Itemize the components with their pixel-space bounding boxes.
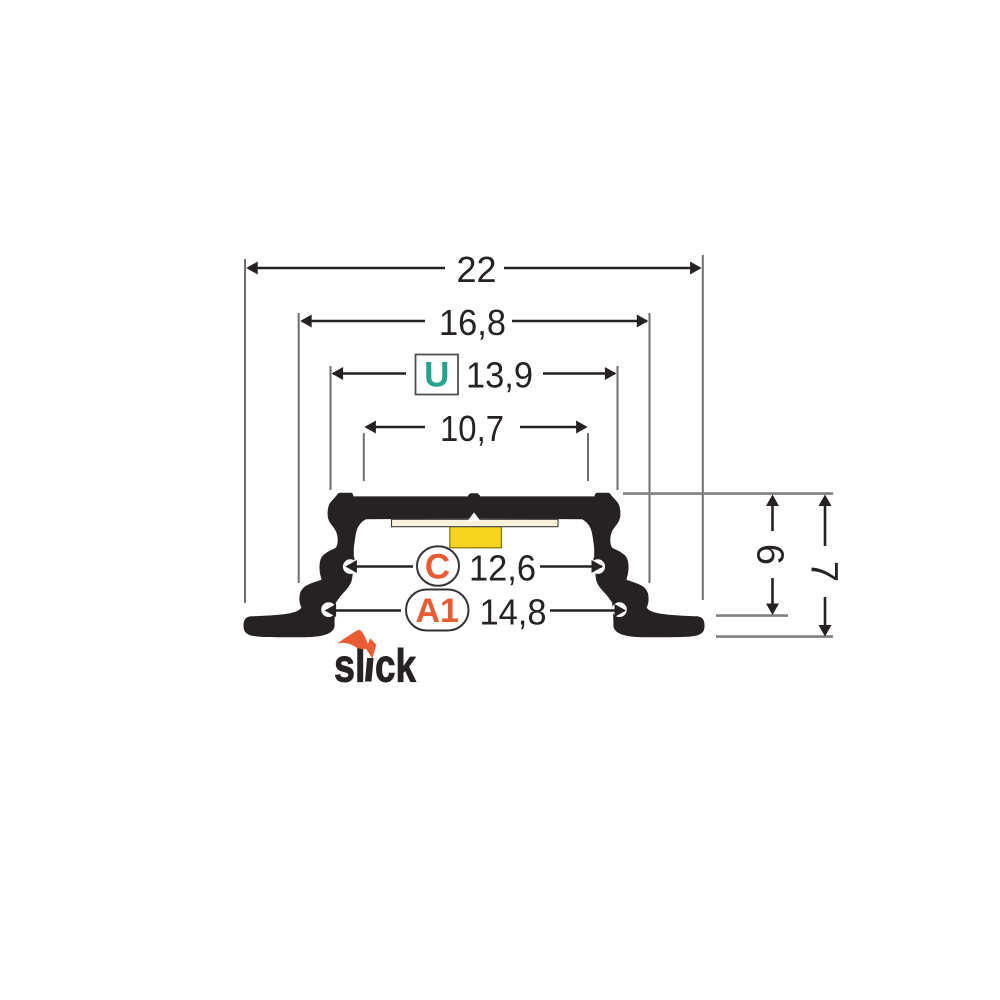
svg-text:13,9: 13,9 — [466, 355, 533, 396]
svg-text:ck: ck — [375, 640, 416, 692]
svg-text:16,8: 16,8 — [439, 302, 506, 343]
svg-text:10,7: 10,7 — [440, 408, 504, 449]
svg-text:12,6: 12,6 — [469, 548, 536, 589]
svg-text:6: 6 — [749, 544, 791, 565]
svg-text:14,8: 14,8 — [480, 592, 547, 633]
svg-text:C: C — [425, 548, 450, 587]
svg-text:U: U — [424, 356, 449, 395]
svg-text:22: 22 — [457, 249, 497, 290]
svg-text:A1: A1 — [415, 592, 458, 630]
svg-text:7: 7 — [803, 561, 845, 582]
